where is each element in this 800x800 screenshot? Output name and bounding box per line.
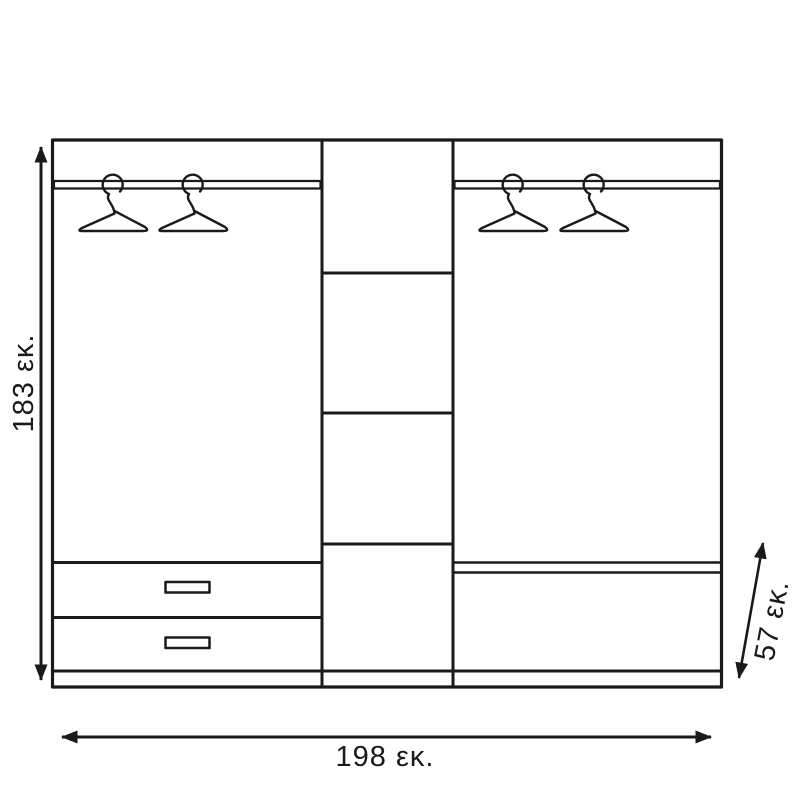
diagram-canvas: 183 εκ. 198 εκ. 57 εκ. [0,0,800,800]
height-dimension-label: 183 εκ. [8,334,40,433]
depth-dimension: 57 εκ. [739,543,796,678]
wardrobe-body [53,140,722,687]
dimension-annotations: 183 εκ. 198 εκ. 57 εκ. [8,147,796,773]
wardrobe-diagram: 183 εκ. 198 εκ. 57 εκ. [0,0,800,800]
hanger-icon [79,175,147,231]
width-dimension-label: 198 εκ. [336,741,435,773]
hanging-rail-right [455,181,721,189]
height-dimension: 183 εκ. [8,147,41,680]
hanger-icon [560,175,628,231]
hanger-icon [479,175,547,231]
drawer-handle-icon [166,582,210,593]
hanging-rail-left [54,181,321,189]
hanger-icon [159,175,227,231]
width-dimension: 198 εκ. [62,737,711,773]
drawer-handle-icon [166,638,210,649]
